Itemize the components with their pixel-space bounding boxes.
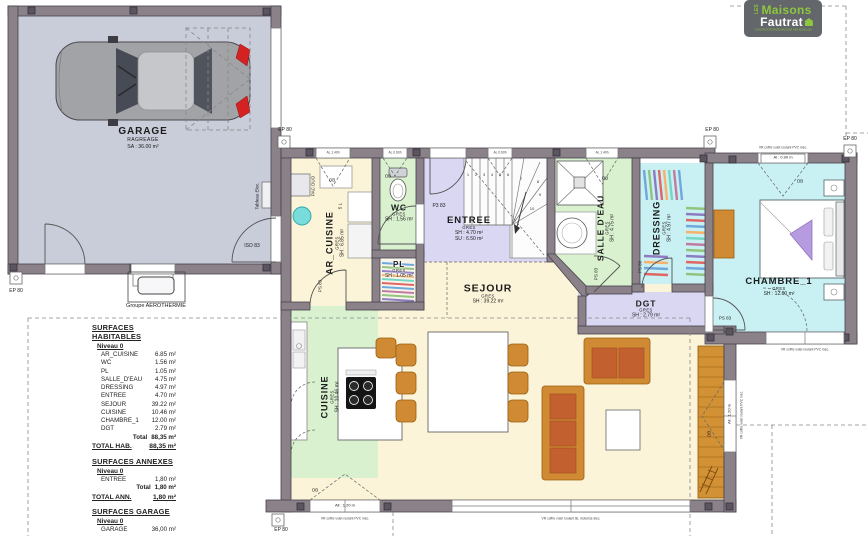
aerothermie-label: Groupe AEROTHERMIE <box>126 303 186 309</box>
row-value: 36,00 m² <box>152 526 176 534</box>
table-title: SURFACES GARAGE <box>92 507 176 516</box>
island-stool <box>376 338 396 358</box>
window-dim-label: Al : 0.90 m <box>773 156 792 161</box>
row-value: 39.22 m² <box>152 401 176 409</box>
ob-label: OB <box>385 173 392 178</box>
row-value: 6.85 m² <box>155 351 176 359</box>
door-label-ps83: PS 83 <box>317 280 322 292</box>
vr-note: VR coffre volet roulant PVC méc. <box>321 517 369 521</box>
electrical-panel-label: Tableau Elec. <box>254 182 259 209</box>
room-label-wc: WC GRES SH : 1.56 m² <box>385 203 413 224</box>
door-label-iso83: ISO 83 <box>244 244 260 250</box>
window-dim-label: AL 1.40h <box>595 151 608 155</box>
row-value: 10.46 m² <box>152 409 176 417</box>
row-label: ENTREE <box>101 392 126 400</box>
table-grand-total: TOTAL HAB. 88,35 m² <box>92 442 176 452</box>
table-surfaces-annexes: SURFACES ANNEXES Niveau 0 ENTREE1,80 m² … <box>92 457 176 503</box>
stair-step-number: 10 <box>530 206 535 211</box>
five-l-label: 5 L <box>337 203 342 209</box>
vr-note: VR coffre volet roulant PVC méc. <box>759 146 807 150</box>
table-row: PL1.05 m² <box>92 368 176 376</box>
dresser <box>714 210 734 258</box>
door-label-p383: P3 83 <box>432 204 445 210</box>
coffee-table <box>606 410 640 450</box>
pac-duo-label: PAC DUO <box>310 176 315 196</box>
row-value: 4.75 m² <box>155 376 176 384</box>
row-value: 1,80 m² <box>155 476 176 484</box>
surface-tables: SURFACES HABITABLES Niveau 0 AR_CUISINE6… <box>92 319 176 534</box>
row-label: WC <box>101 359 111 367</box>
row-label: CUISINE <box>101 409 126 417</box>
door-label-ps83: PS 83 <box>719 315 731 320</box>
ep-marker-label: EP 80 <box>274 528 288 534</box>
row-label: ENTREE <box>101 476 126 484</box>
table-surfaces-garage: SURFACES GARAGE Niveau 0 GARAGE36,00 m² <box>92 507 176 534</box>
table-title: SURFACES HABITABLES <box>92 323 176 341</box>
table-body: GARAGE36,00 m² <box>92 526 176 534</box>
logo-les-text: LES <box>755 7 760 14</box>
window-dim-label: AL 1.40h <box>326 151 339 155</box>
row-value: 4.97 m² <box>155 384 176 392</box>
nightstand <box>824 180 844 196</box>
table-body: AR_CUISINE6.85 m²WC1.56 m²PL1.05 m²SALLE… <box>92 351 176 434</box>
table-row: ENTREE1,80 m² <box>92 476 176 484</box>
room-label-cuisine: CUISINE GRES SH : 10.46 m² <box>319 376 340 419</box>
ob-label: OB <box>312 487 319 492</box>
table-level: Niveau 0 <box>97 468 176 475</box>
row-label: SEJOUR <box>101 401 126 409</box>
ob-label: OB <box>602 175 609 180</box>
table-level: Niveau 0 <box>97 343 176 350</box>
room-label-dgt: DGT GRES SH : 2.79 m² <box>632 299 660 320</box>
maisons-fautrat-logo: LES Maisons Fautrat CONSTRUCTEUR DE MAIS… <box>744 0 822 37</box>
door-label-ps83: PS 83 <box>637 261 642 273</box>
ep-marker-label: EP 80 <box>9 289 23 295</box>
car-top-view <box>56 36 250 126</box>
row-value: 12.00 m² <box>152 417 176 425</box>
dining-table <box>428 332 508 432</box>
ob-label: OB <box>797 178 804 183</box>
room-label-entree: ENTREE GRES SH : 4.70 m² SU : 6.50 m² <box>447 215 491 243</box>
deck-strip <box>698 346 724 498</box>
nightstand <box>824 284 844 300</box>
ob-label: OB <box>329 177 336 182</box>
water-heater <box>293 207 311 225</box>
cooktop <box>346 377 376 409</box>
wc-toilet <box>389 168 407 201</box>
table-total-row: Total 88,35 m² <box>92 434 176 443</box>
table-row: AR_CUISINE6.85 m² <box>92 351 176 359</box>
room-label-salle-deau: SALLE D'EAU GRES SH : 4.75 m² <box>596 195 617 261</box>
ep-marker-label: EP 80 <box>705 128 719 134</box>
table-row: SALLE_D'EAU4.75 m² <box>92 376 176 384</box>
row-label: DRESSING <box>101 384 133 392</box>
table-grand-total: TOTAL ANN. 1,80 m² <box>92 493 176 503</box>
window-dim-label: All : 1.20 m <box>728 404 733 424</box>
table-total-row: Total 1,80 m² <box>92 484 176 493</box>
floor-plan-page: 1 2 3 4 5 6 7 8 9 10 <box>0 0 868 536</box>
table-row: CUISINE10.46 m² <box>92 409 176 417</box>
table-row: DGT2.79 m² <box>92 425 176 433</box>
room-label-pl: PL GRES SH : 1.05 m² <box>385 260 413 280</box>
row-label: CHAMBRE_1 <box>101 417 139 425</box>
logo-fautrat-text: Fautrat <box>760 16 803 28</box>
house-icon <box>805 18 813 26</box>
table-row: ENTREE4.70 m² <box>92 392 176 400</box>
window-dim-label: AL 0.60h <box>493 151 506 155</box>
row-label: PL <box>101 368 109 376</box>
row-label: GARAGE <box>101 526 127 534</box>
row-value: 1.56 m² <box>155 359 176 367</box>
row-label: SALLE_D'EAU <box>101 376 142 384</box>
door-label-ps83: PS 83 <box>593 268 598 280</box>
table-row: DRESSING4.97 m² <box>92 384 176 392</box>
table-row: WC1.56 m² <box>92 359 176 367</box>
vr-note: VR coffre volet roulant PVC méc. <box>740 391 744 439</box>
room-label-dressing: DRESSING GRES SH : 4.97 m² <box>651 201 672 255</box>
room-label-sejour: SEJOUR GRES SH : 39.22 m² <box>464 282 513 305</box>
ep-marker-label: EP 80 <box>843 137 857 143</box>
room-label-chambre1: CHAMBRE_1 GRES SH : 12.00 m² <box>745 276 812 298</box>
dining-set <box>396 332 528 432</box>
table-row: CHAMBRE_112.00 m² <box>92 417 176 425</box>
row-label: DGT <box>101 425 114 433</box>
window-dim-label: All : 1.20 m <box>335 504 355 509</box>
table-level: Niveau 0 <box>97 518 176 525</box>
logo-tagline: CONSTRUCTEUR DE MAISONS INDIVIDUELLES <box>754 29 811 32</box>
row-value: 1.05 m² <box>155 368 176 376</box>
table-surfaces-habitables: SURFACES HABITABLES Niveau 0 AR_CUISINE6… <box>92 323 176 453</box>
row-label: AR_CUISINE <box>101 351 138 359</box>
vr-note: VR coffre volet roulant BL motorisé élec… <box>542 517 601 521</box>
ep-marker-label: EP 80 <box>278 128 292 134</box>
room-label-garage: GARAGE RAGREAGE SA : 36.00 m² <box>118 126 167 150</box>
table-row: GARAGE36,00 m² <box>92 526 176 534</box>
front-door-opening <box>430 148 466 158</box>
table-body: ENTREE1,80 m² <box>92 476 176 484</box>
electrical-panel <box>262 182 271 208</box>
table-row: SEJOUR39.22 m² <box>92 401 176 409</box>
table-title: SURFACES ANNEXES <box>92 457 176 466</box>
vr-note: VR coffre volet roulant PVC méc. <box>781 348 829 352</box>
room-label-ar-cuisine: AR_CUISINE GRES SH : 6.85 m² <box>324 211 345 275</box>
ob-label: OB <box>706 431 711 438</box>
row-value: 2.79 m² <box>155 425 176 433</box>
window-dim-label: AL 0.60h <box>388 151 401 155</box>
row-value: 4.70 m² <box>155 392 176 400</box>
